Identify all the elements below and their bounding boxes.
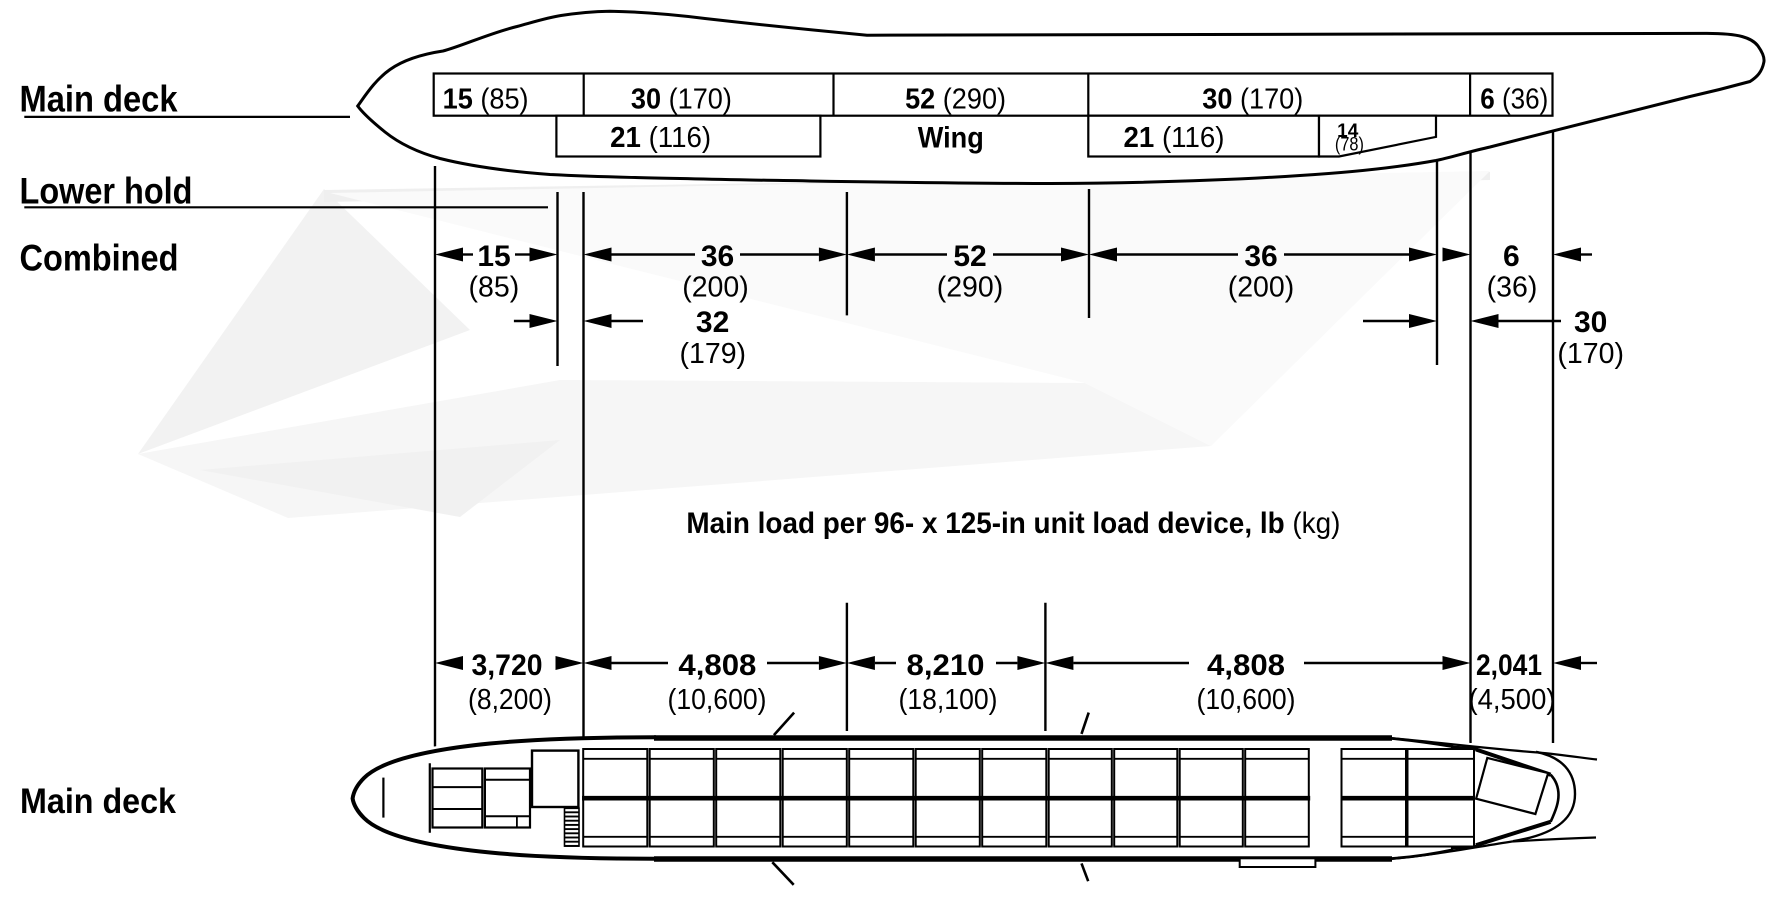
svg-text:32: 32: [696, 306, 729, 339]
svg-text:(36): (36): [1487, 272, 1538, 304]
svg-text:(200): (200): [682, 272, 749, 304]
svg-text:21 (116): 21 (116): [1124, 122, 1225, 154]
svg-text:52 (290): 52 (290): [905, 84, 1006, 116]
svg-text:(290): (290): [937, 272, 1004, 304]
svg-text:52: 52: [953, 240, 986, 273]
svg-text:(10,600): (10,600): [1197, 684, 1296, 716]
svg-text:36: 36: [701, 240, 734, 273]
svg-text:15 (85): 15 (85): [443, 84, 529, 116]
svg-text:(170): (170): [1557, 338, 1624, 370]
svg-text:30 (170): 30 (170): [1202, 84, 1303, 116]
svg-text:3,720: 3,720: [472, 649, 543, 682]
svg-text:(18,100): (18,100): [899, 684, 998, 716]
svg-text:4,808: 4,808: [1207, 649, 1285, 682]
svg-text:30 (170): 30 (170): [631, 84, 732, 116]
svg-text:21 (116): 21 (116): [610, 122, 711, 154]
svg-text:6 (36): 6 (36): [1480, 84, 1548, 116]
svg-text:(85): (85): [469, 272, 520, 304]
svg-text:(4,500): (4,500): [1469, 684, 1556, 716]
svg-text:(8,200): (8,200): [468, 684, 552, 716]
svg-text:(179): (179): [680, 338, 747, 370]
svg-text:Wing: Wing: [918, 121, 984, 154]
svg-text:(200): (200): [1228, 272, 1295, 304]
svg-text:(10,600): (10,600): [668, 684, 767, 716]
svg-text:4,808: 4,808: [678, 649, 756, 682]
svg-text:2,041: 2,041: [1476, 649, 1542, 682]
svg-text:Main deck: Main deck: [20, 78, 178, 119]
svg-text:15: 15: [477, 240, 510, 273]
svg-text:30: 30: [1574, 306, 1607, 339]
svg-text:Main deck: Main deck: [20, 782, 176, 821]
svg-text:Lower hold: Lower hold: [20, 171, 193, 212]
svg-text:Main load per 96- x 125-in uni: Main load per 96- x 125-in unit load dev…: [686, 507, 1340, 540]
svg-text:8,210: 8,210: [907, 649, 985, 682]
svg-text:Combined: Combined: [20, 238, 179, 279]
svg-text:(78): (78): [1335, 135, 1364, 156]
svg-text:6: 6: [1503, 240, 1520, 273]
svg-text:36: 36: [1244, 240, 1277, 273]
